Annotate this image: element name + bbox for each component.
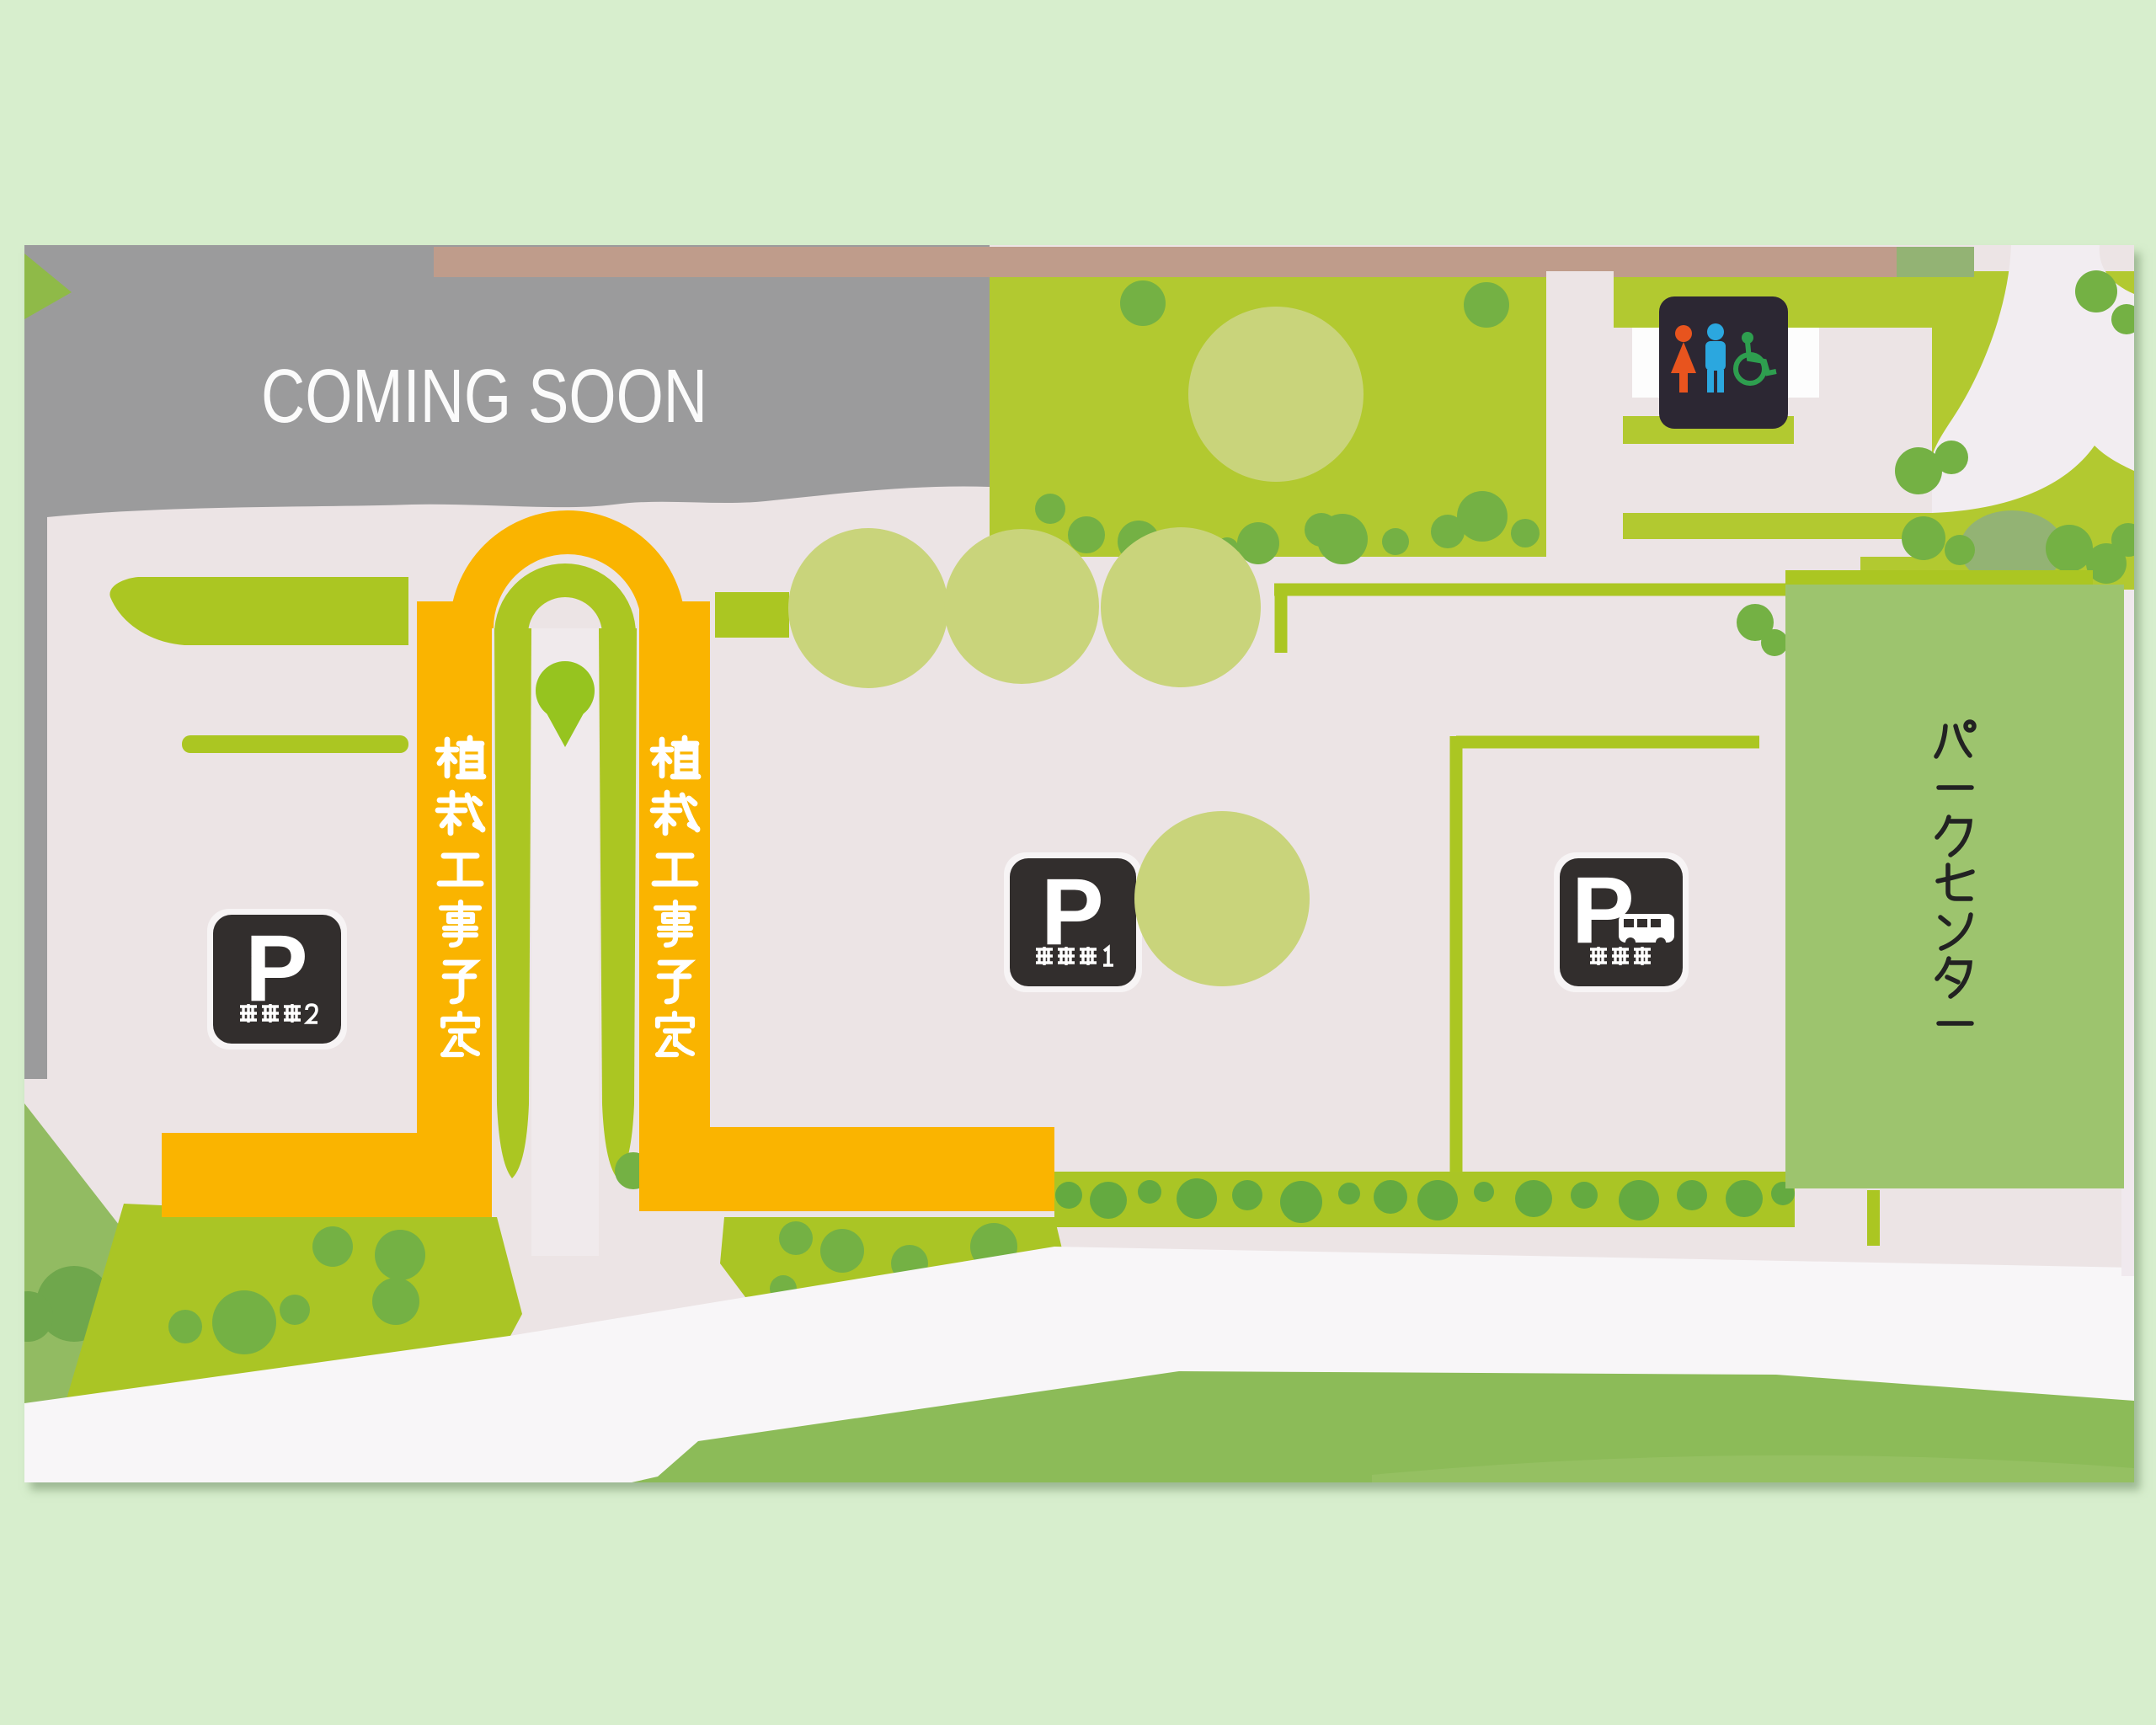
svg-text:COMING SOON: COMING SOON [261, 355, 707, 439]
svg-text:P: P [1572, 857, 1635, 963]
svg-text:P: P [245, 916, 308, 1021]
